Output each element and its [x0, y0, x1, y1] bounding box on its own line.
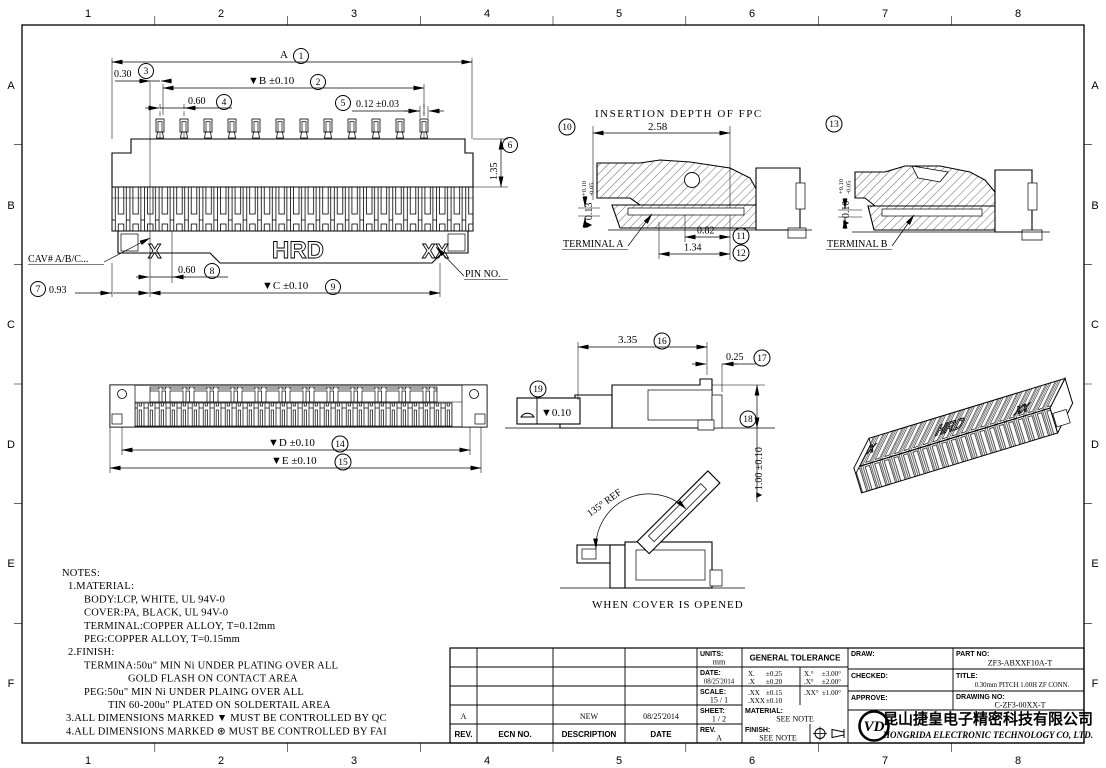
finish-value: SEE NOTE: [759, 734, 797, 743]
note-line: TERMINAL:COPPER ALLOY, T=0.12mm: [84, 621, 275, 632]
col-label: 7: [882, 755, 888, 767]
revision-table: A NEW 08/25'2014 REV. ECN NO. DESCRIPTIO…: [455, 712, 679, 739]
dim-C: ▼C ±0.10 9: [150, 280, 440, 295]
drawing-sheet: 1 2 3 4 5 6 7 8 1 2 3 4 5 6 7 8 A B C D …: [0, 0, 1106, 768]
dim-D-text: ▼D ±0.10: [268, 437, 315, 449]
tol-cell: X.°: [804, 670, 814, 678]
part-no-value: ZF3-ABXXF10A-T: [988, 659, 1053, 668]
opened-cover: [637, 471, 720, 554]
col-label: 6: [749, 755, 755, 767]
insertion-depth-title: INSERTION DEPTH OF FPC: [595, 108, 763, 120]
tol-cell: ±2.00°: [822, 678, 841, 686]
col-label: 8: [1015, 8, 1021, 20]
row-label: A: [7, 80, 15, 92]
dim-135: 6 1.35: [473, 138, 518, 188]
balloon-10: 10: [562, 123, 572, 133]
note-line: 4.ALL DIMENSIONS MARKED ⊛ MUST BE CONTRO…: [66, 726, 387, 737]
row-label: E: [1091, 558, 1098, 570]
col-label: 4: [484, 8, 490, 20]
tol-cell: ±0.10: [766, 697, 783, 705]
rev-row-description: NEW: [580, 712, 599, 721]
notes-block: NOTES: 1.MATERIAL: BODY:LCP, WHITE, UL 9…: [62, 568, 387, 737]
col-label: 7: [882, 8, 888, 20]
row-label: D: [1091, 439, 1099, 451]
note-line: 2.FINISH:: [68, 647, 114, 658]
balloon-16: 16: [657, 337, 667, 347]
dim-B-text: ▼B ±0.10: [248, 75, 295, 87]
checked-label: CHECKED:: [851, 673, 888, 680]
rev-label: REV.: [700, 727, 716, 734]
balloon-5: 5: [341, 99, 346, 109]
dim-030: 0.30 3: [114, 64, 172, 82]
dim-A-text: A: [280, 49, 288, 61]
date-label: DATE:: [700, 670, 721, 677]
dim-258-text: 2.58: [648, 121, 668, 133]
dim-010-tol-up: +0.10: [838, 179, 845, 194]
rev-value: A: [716, 734, 722, 743]
rev-header-date: DATE: [650, 730, 672, 739]
title-block: A NEW 08/25'2014 REV. ECN NO. DESCRIPTIO…: [450, 648, 1093, 743]
dim-060-top-text: 0.60: [188, 96, 206, 107]
dim-013: ▼0.13 +0.10 -0.05: [581, 181, 596, 230]
col-label: 4: [484, 755, 490, 767]
dim-093: 7 0.93: [31, 282, 150, 297]
dim-134-text: 1.34: [684, 243, 702, 254]
dim-A: A 1: [112, 49, 472, 64]
section-view-terminal-a: INSERTION DEPTH OF FPC 2.58 10 ▼0.13 +0.…: [559, 108, 812, 261]
balloon-17: 17: [757, 354, 767, 364]
note-line: TERMINA:50u" MIN Ni UNDER PLATING OVER A…: [84, 660, 338, 671]
tol-cell: ±3.00°: [822, 670, 841, 678]
dim-E-text: ▼E ±0.10: [271, 455, 317, 467]
balloon-1: 1: [299, 52, 304, 62]
row-label: C: [7, 319, 15, 331]
col-label: 1: [85, 8, 91, 20]
scale-value: 15 / 1: [710, 696, 728, 705]
pin-row: [156, 119, 428, 138]
info-column: UNITS: mm DATE: 08/25'2014 SCALE: 15 / 1…: [700, 651, 735, 743]
pin-mark-xx: XX: [422, 241, 449, 263]
balloon-9: 9: [331, 283, 336, 293]
balloon-2: 2: [316, 78, 321, 88]
note-line: PEG:COPPER ALLOY, T=0.15mm: [84, 634, 240, 645]
isometric-view: HRD X XX: [847, 378, 1080, 492]
tol-cell: ±0.15: [766, 689, 783, 697]
dim-093-text: 0.93: [49, 285, 67, 296]
row-label: B: [7, 200, 14, 212]
flatness-value: ▼0.10: [541, 407, 572, 419]
balloon-6: 6: [508, 141, 513, 151]
note-line: 3.ALL DIMENSIONS MARKED ▼ MUST BE CONTRO…: [66, 713, 387, 724]
date-value: 08/25'2014: [704, 679, 735, 686]
terminal-a-label: TERMINAL A: [563, 239, 624, 250]
dim-012: 0.12 ±0.03 5: [336, 96, 445, 119]
projection-symbol-icon: [813, 727, 844, 741]
col-label: 2: [218, 755, 224, 767]
tol-cell: X.: [748, 670, 755, 678]
frame-column-labels-bottom: 1 2 3 4 5 6 7 8: [85, 755, 1021, 767]
balloon-8: 8: [210, 267, 215, 277]
balloon-3: 3: [144, 67, 149, 77]
tol-cell: .X: [748, 678, 755, 686]
dim-C-text: ▼C ±0.10: [262, 280, 309, 292]
rev-header-rev: REV.: [455, 730, 473, 739]
tolerance-title: GENERAL TOLERANCE: [750, 654, 841, 663]
row-label: B: [1091, 200, 1098, 212]
tol-cell: ±0.25: [766, 670, 783, 678]
row-label: E: [7, 558, 14, 570]
brand-mark-hrd: HRD: [272, 237, 324, 264]
row-label: F: [1092, 678, 1099, 690]
col-label: 2: [218, 8, 224, 20]
title-label: TITLE:: [956, 673, 978, 680]
note-line: 1.MATERIAL:: [68, 581, 134, 592]
col-label: 6: [749, 8, 755, 20]
frame-row-labels-right: A B C D E F: [1091, 80, 1099, 690]
balloon-13: 13: [829, 120, 839, 130]
part-no-label: PART NO:: [956, 651, 989, 658]
balloon-15: 15: [338, 458, 348, 468]
dim-060-top: 0.60 4: [145, 95, 232, 110]
rev-header-description: DESCRIPTION: [562, 730, 617, 739]
row-label: D: [7, 439, 15, 451]
row-label: A: [1091, 80, 1099, 92]
dim-013-text: ▼0.13: [584, 203, 595, 230]
units-value: mm: [713, 658, 726, 667]
side-view-drawing: 19 ▼0.10 3.35 16 0.25 17 18 ▼1.00 ±0.10: [505, 333, 775, 502]
dim-060-bot-text: 0.60: [178, 265, 196, 276]
dim-082-text: 0.82: [697, 226, 715, 237]
company-name-cn: 昆山捷皇电子精密科技有限公司: [883, 710, 1093, 728]
dim-B: ▼B ±0.10 2: [163, 75, 424, 90]
col-label: 5: [616, 8, 622, 20]
balloon-11: 11: [736, 232, 745, 242]
dim-D: ▼D ±0.10 14: [122, 427, 470, 455]
balloon-18: 18: [743, 415, 753, 425]
note-line: COVER:PA, BLACK, UL 94V-0: [84, 608, 228, 619]
notes-title: NOTES:: [62, 568, 100, 579]
note-line: PEG:50u" MIN Ni UNDER PLAING OVER ALL: [84, 687, 304, 698]
pin-no-label: PIN NO.: [465, 269, 501, 280]
cover-opened-view: 135° REF WHEN COVER IS OPENED: [560, 471, 745, 611]
dim-135-text: 1.35: [489, 163, 500, 181]
tol-cell: ±0.20: [766, 678, 783, 686]
flatness-frame: 19 ▼0.10: [517, 381, 580, 424]
rev-row-date: 08/25'2014: [643, 712, 679, 721]
tol-cell: .XX°: [804, 689, 819, 697]
sheet-value: 1 / 2: [712, 715, 726, 724]
cover-opened-caption: WHEN COVER IS OPENED: [592, 599, 744, 611]
dim-100-text: ▼1.00 ±0.10: [754, 447, 765, 500]
drawing-no-value: C-ZF3-00XX-T: [994, 701, 1045, 710]
tol-cell: ±1.00°: [822, 689, 841, 697]
cav-label: CAV# A/B/C...: [28, 254, 88, 265]
terminal-b-label: TERMINAL B: [827, 239, 888, 250]
dim-010-tol-dn: -0.05: [846, 180, 853, 194]
dim-012-text: 0.12 ±0.03: [356, 99, 399, 110]
note-line: BODY:LCP, WHITE, UL 94V-0: [84, 594, 225, 605]
col-label: 3: [351, 8, 357, 20]
engineering-drawing-canvas: 1 2 3 4 5 6 7 8 1 2 3 4 5 6 7 8 A B C D …: [0, 0, 1106, 768]
dim-335-text: 3.35: [618, 334, 638, 346]
balloon-14: 14: [335, 440, 345, 450]
col-label: 5: [616, 755, 622, 767]
top-view-drawing: X HRD XX A 1 ▼B ±0.10 2 0.30 3 0.60 4: [28, 49, 518, 298]
col-label: 3: [351, 755, 357, 767]
section-view-terminal-b: 13 ▼0.10 +0.10 -0.05 TERMINAL B: [826, 116, 1050, 250]
note-line: TIN 60-200u" PLATED ON SOLDERTAIL AREA: [108, 700, 331, 711]
material-value: SEE NOTE: [776, 715, 814, 724]
dim-013-tol-dn: -0.05: [589, 182, 596, 196]
dim-030-text: 0.30: [114, 69, 132, 80]
balloon-4: 4: [222, 98, 227, 108]
row-label: C: [1091, 319, 1099, 331]
frame-row-labels-left: A B C D E F: [7, 80, 15, 690]
approve-label: APPROVE:: [851, 695, 888, 702]
col-label: 1: [85, 755, 91, 767]
row-label: F: [8, 678, 15, 690]
tol-cell: .XX: [748, 689, 760, 697]
tol-cell: .XXX: [748, 697, 765, 705]
dim-013-tol-up: +0.10: [581, 181, 588, 196]
general-tolerance: GENERAL TOLERANCE X. ±0.25 X.° ±3.00° .X…: [748, 654, 841, 706]
title-value: 0.30mm PITCH 1.00H ZF CONN.: [975, 682, 1070, 689]
rev-row-rev: A: [461, 712, 467, 721]
note-line: GOLD FLASH ON CONTACT AREA: [128, 674, 298, 685]
draw-label: DRAW:: [851, 651, 875, 658]
logo-text: VD: [864, 719, 885, 735]
rev-header-ecn: ECN NO.: [498, 730, 531, 739]
col-label: 8: [1015, 755, 1021, 767]
balloon-12: 12: [736, 249, 746, 259]
tol-cell: .X°: [804, 678, 814, 686]
dim-010-text: ▼0.10: [841, 201, 852, 228]
dim-025-text: 0.25: [726, 352, 744, 363]
company-name-en: HONGRIDA ELECTRONIC TECHNOLOGY CO, LTD.: [882, 730, 1093, 740]
bottom-view-drawing: ▼D ±0.10 14 ▼E ±0.10 15: [110, 385, 487, 473]
balloon-19: 19: [533, 385, 543, 395]
balloon-7: 7: [36, 285, 41, 295]
